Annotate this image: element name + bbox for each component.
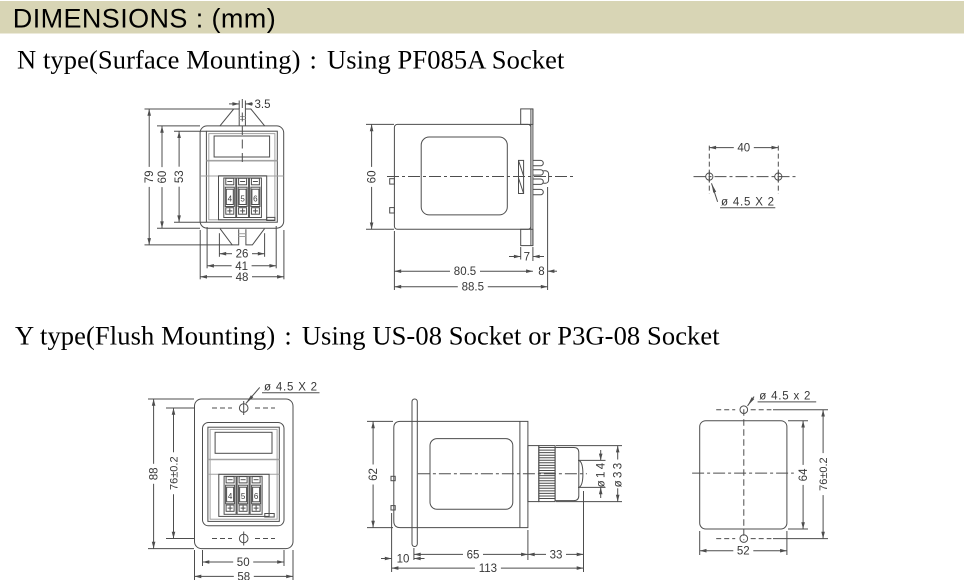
- svg-text:58: 58: [237, 571, 250, 580]
- svg-text:48: 48: [236, 272, 249, 284]
- svg-text:80.5: 80.5: [454, 266, 476, 278]
- svg-text:5: 5: [241, 492, 246, 501]
- svg-text:26: 26: [236, 249, 249, 261]
- svg-text:64: 64: [798, 468, 810, 481]
- svg-text:ø14: ø14: [596, 460, 608, 487]
- svg-text:50: 50: [237, 557, 250, 569]
- svg-text:ø33: ø33: [613, 460, 625, 487]
- svg-text:3.5: 3.5: [255, 99, 271, 111]
- svg-text:88: 88: [149, 467, 161, 480]
- svg-text:65: 65: [467, 549, 480, 561]
- svg-text:ø 4.5 x 2: ø 4.5 x 2: [759, 391, 811, 403]
- svg-text:88.5: 88.5: [462, 282, 484, 294]
- svg-text:60: 60: [367, 171, 379, 184]
- svg-text:ø 4.5 X 2: ø 4.5 X 2: [721, 197, 775, 209]
- svg-text:7: 7: [524, 252, 530, 264]
- svg-text:N type(Surface Mounting):Using: N type(Surface Mounting):Using PF085A So…: [17, 45, 565, 75]
- svg-text:76±0.2: 76±0.2: [818, 457, 830, 491]
- svg-text:5: 5: [240, 195, 245, 204]
- svg-text:Y type(Flush Mounting):Using U: Y type(Flush Mounting):Using US-08 Socke…: [15, 321, 720, 351]
- svg-text:6: 6: [254, 492, 259, 501]
- svg-text:79: 79: [144, 171, 156, 184]
- svg-text:60: 60: [157, 171, 169, 184]
- svg-text:4: 4: [228, 492, 233, 501]
- svg-text:DIMENSIONS : (mm): DIMENSIONS : (mm): [13, 4, 276, 34]
- svg-text:52: 52: [737, 546, 750, 558]
- svg-text:113: 113: [479, 563, 497, 575]
- svg-text:40: 40: [737, 143, 750, 155]
- svg-text:6: 6: [253, 195, 258, 204]
- svg-text:62: 62: [368, 468, 380, 481]
- svg-text:76±0.2: 76±0.2: [169, 456, 181, 490]
- svg-text:10: 10: [397, 554, 410, 566]
- svg-text:8: 8: [538, 266, 544, 278]
- svg-text:53: 53: [174, 170, 186, 183]
- svg-text:4: 4: [228, 195, 233, 204]
- svg-text:ø 4.5 X 2: ø 4.5 X 2: [264, 382, 318, 394]
- svg-text:33: 33: [550, 549, 563, 561]
